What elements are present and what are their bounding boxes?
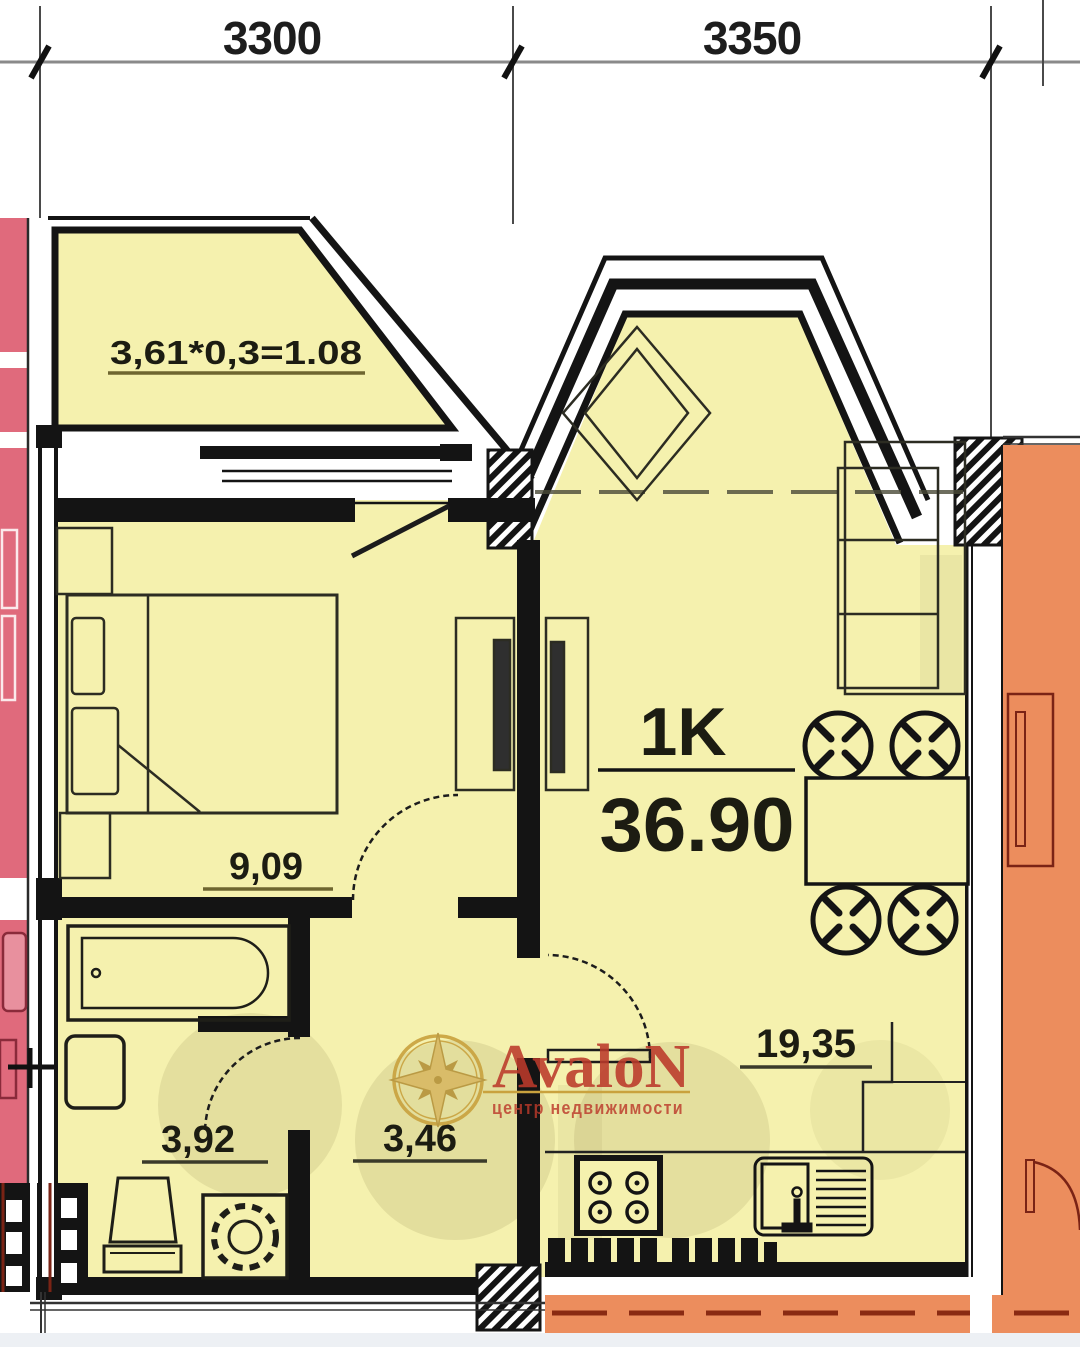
kitchen-bottom-wall [545, 1262, 968, 1277]
adjacent-window-gap [0, 352, 28, 368]
floor-plan-image: 3300 3350 [0, 0, 1080, 1347]
bedroom-living-wall [517, 540, 540, 918]
adjacent-room [1003, 445, 1080, 1295]
balcony-floor [55, 230, 452, 428]
bathroom-wall [288, 918, 310, 1037]
bottom-strip [0, 1333, 1080, 1347]
dining-table [806, 778, 968, 884]
wardrobe-inner [494, 640, 510, 770]
bedroom-bottom-wall [458, 897, 517, 918]
floor-plan-svg: 3300 3350 [0, 0, 1080, 1347]
watermark-brand: AvaloN [492, 1033, 690, 1101]
entrance-hatched-block [477, 1265, 540, 1330]
unit-type-label: 1K [640, 694, 727, 770]
bathroom-area-label: 3,92 [161, 1119, 235, 1161]
dimension-label-left: 3300 [223, 12, 321, 64]
bedroom-bottom-wall [56, 897, 352, 918]
total-area-label: 36.90 [600, 783, 795, 868]
balcony-area-label: 3,61*0,3=1.08 [110, 334, 362, 371]
shelf-inner [551, 642, 564, 772]
ventilation-shafts [0, 1183, 88, 1292]
stove [577, 1158, 660, 1233]
bathroom-wall [288, 1130, 310, 1282]
bottom-floor-lines [30, 1292, 545, 1333]
dimension-label-right: 3350 [703, 12, 801, 64]
kitchen-area-label: 19,35 [756, 1022, 856, 1066]
watermark: AvaloN центр недвижимости [391, 1033, 690, 1127]
right-party-wall [965, 445, 1004, 1295]
watermark-tagline: центр недвижимости [492, 1098, 684, 1118]
bedroom-top-wall [55, 498, 355, 522]
drain-board-lines [816, 1171, 866, 1225]
balcony-window [200, 444, 472, 481]
bedroom-top-wall [448, 498, 535, 522]
hallway-kitchen-wall [517, 918, 540, 958]
adjacent-room [0, 218, 28, 432]
adjacent-sink [3, 933, 26, 1011]
wall-gap [970, 1295, 992, 1333]
bedroom-area-label: 9,09 [229, 846, 303, 888]
